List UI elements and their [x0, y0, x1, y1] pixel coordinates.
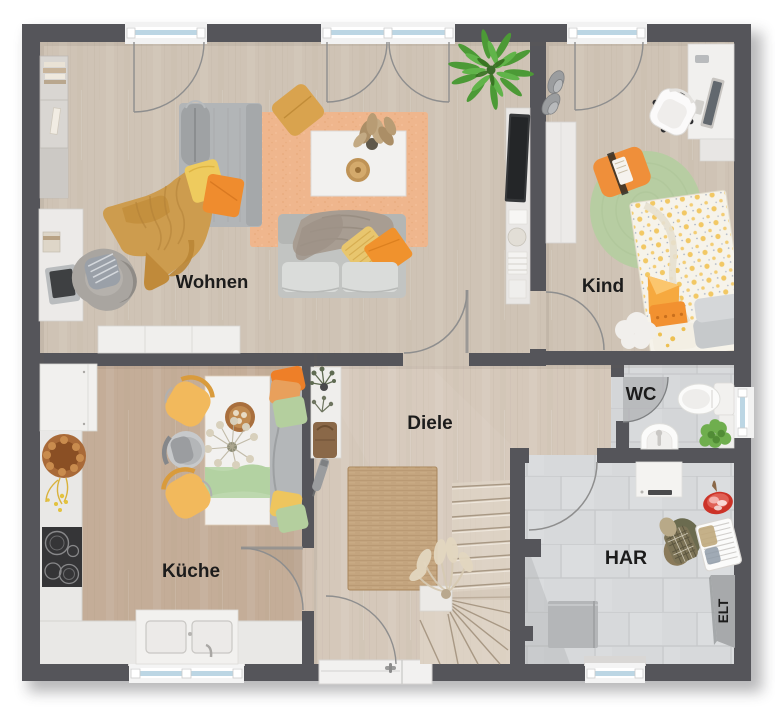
- svg-text:HAR: HAR: [605, 547, 647, 569]
- svg-text:ELT: ELT: [716, 598, 731, 623]
- svg-text:WC: WC: [626, 383, 657, 404]
- svg-text:Wohnen: Wohnen: [176, 271, 249, 292]
- svg-text:Küche: Küche: [162, 561, 220, 582]
- svg-text:Kind: Kind: [582, 276, 624, 297]
- svg-text:Diele: Diele: [407, 413, 452, 434]
